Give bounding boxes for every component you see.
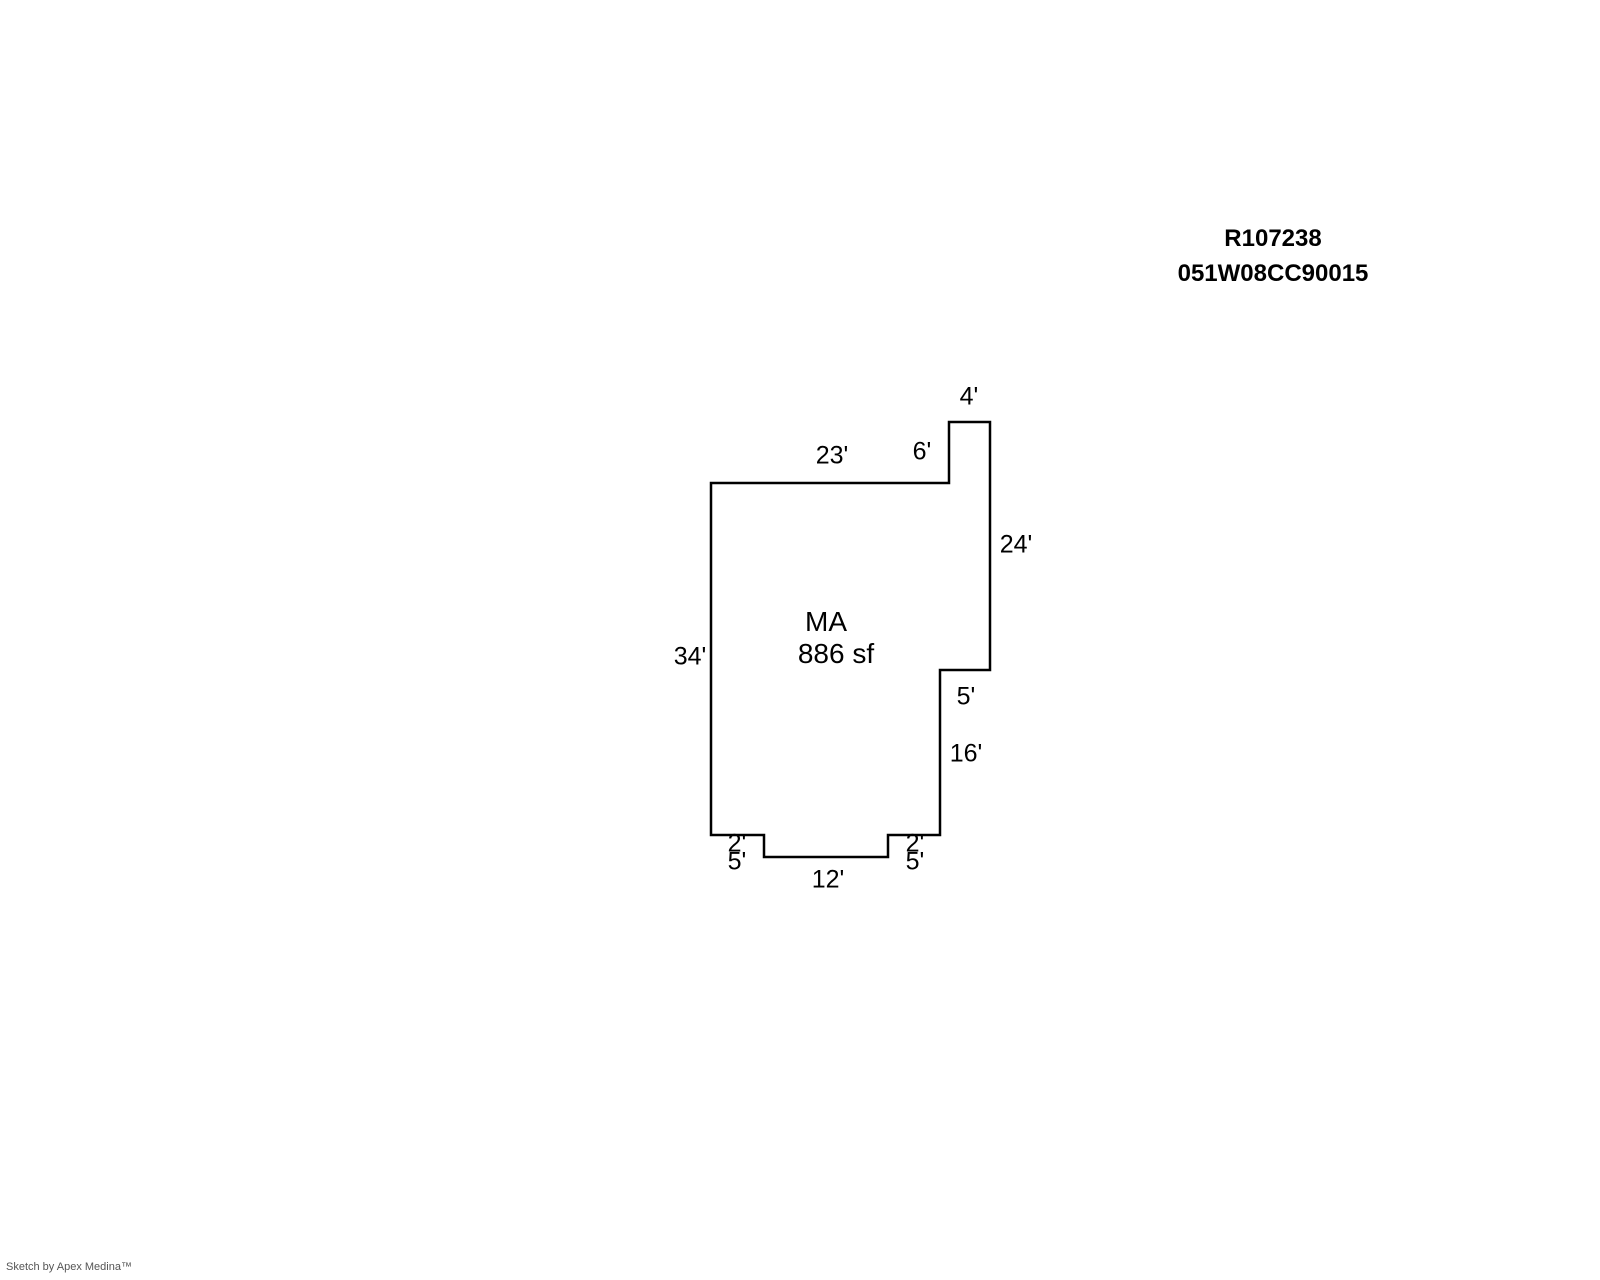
dimension-label: 5' (957, 685, 976, 710)
dimension-label: 12' (812, 868, 845, 893)
room-code-label: MA (805, 608, 847, 636)
dimension-label: 16' (950, 742, 983, 767)
dimension-label: 34' (674, 645, 707, 670)
room-area-label: 886 sf (798, 640, 874, 668)
dimension-label: 5' (906, 850, 925, 875)
dimension-label: 4' (960, 385, 979, 410)
dimension-label: 24' (1000, 533, 1033, 558)
sketch-page: R107238 051W08CC90015 4'23'6'24'34'5'16'… (0, 0, 1600, 1280)
dimension-label: 6' (913, 440, 932, 465)
sketch-credit: Sketch by Apex Medina™ (6, 1261, 132, 1273)
dimension-label: 23' (816, 444, 849, 469)
dimension-label: 5' (728, 850, 747, 875)
